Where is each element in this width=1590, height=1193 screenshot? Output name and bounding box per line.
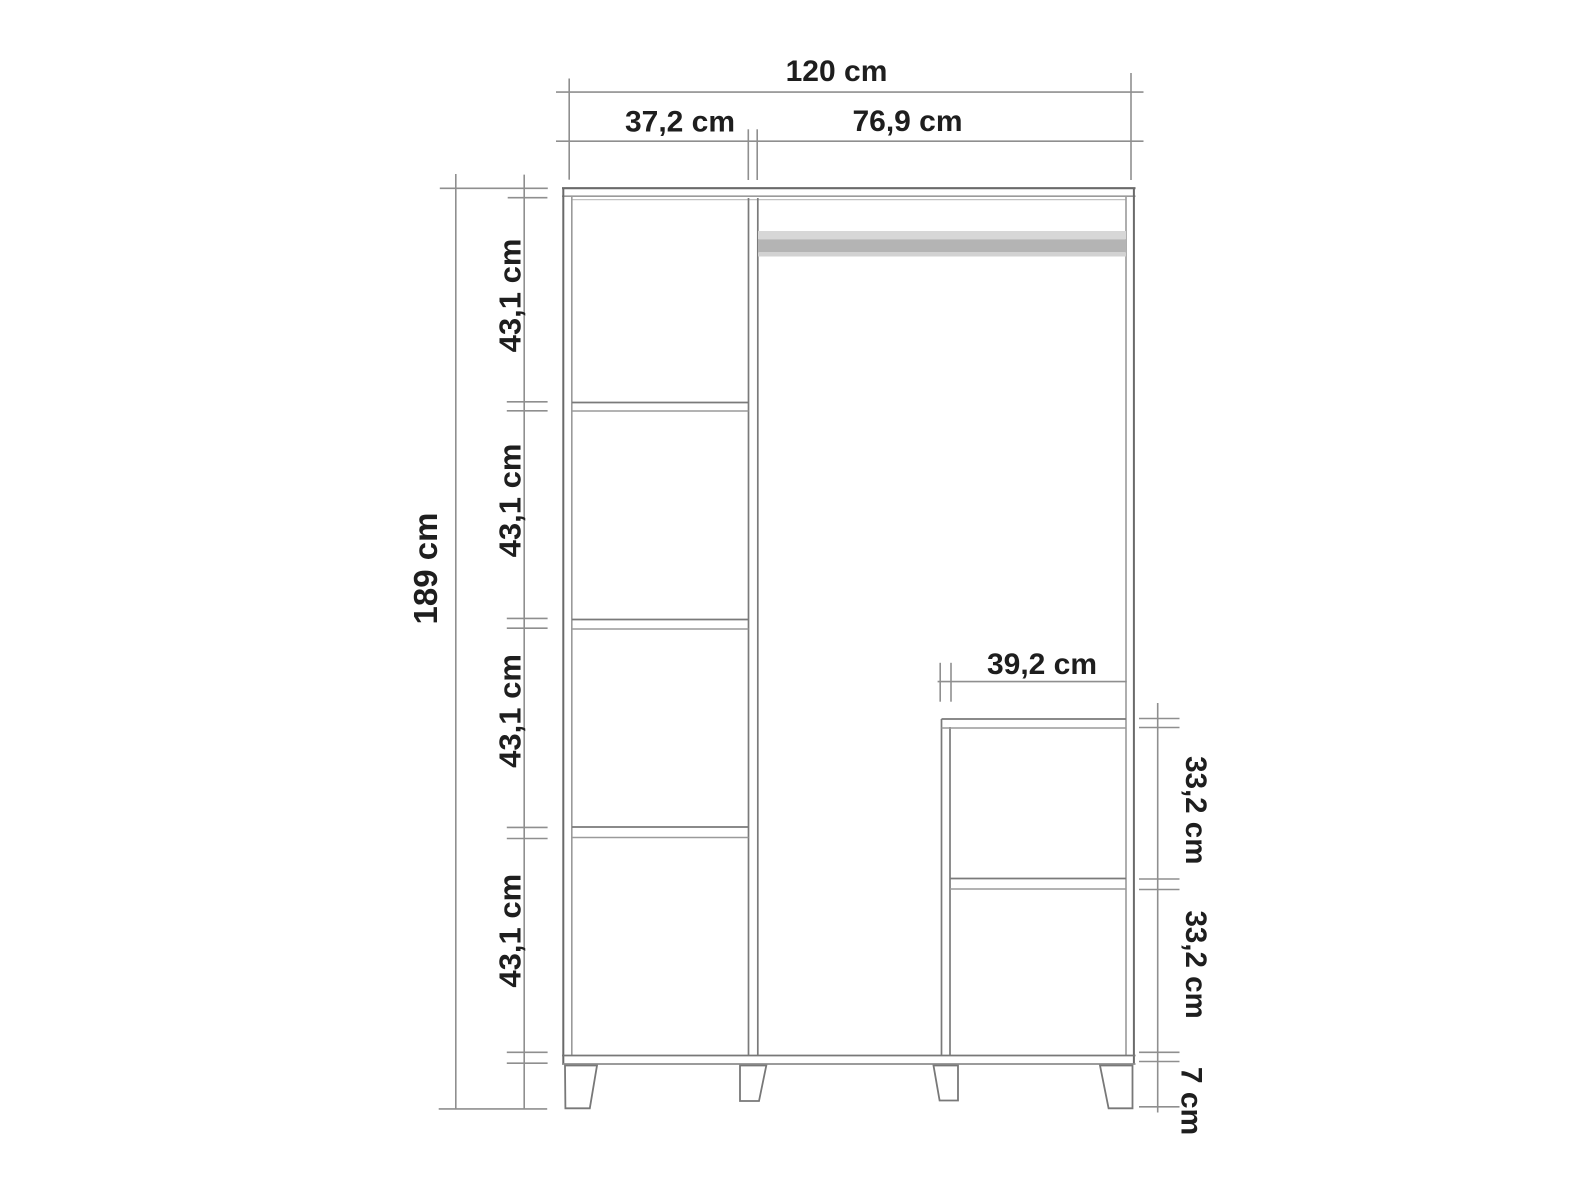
svg-text:76,9 cm: 76,9 cm xyxy=(852,105,962,138)
svg-text:43,1 cm: 43,1 cm xyxy=(493,239,528,353)
svg-text:39,2 cm: 39,2 cm xyxy=(987,648,1097,681)
svg-text:33,2 cm: 33,2 cm xyxy=(1179,910,1212,1018)
svg-text:7 cm: 7 cm xyxy=(1175,1067,1208,1135)
svg-text:43,1 cm: 43,1 cm xyxy=(493,874,528,988)
svg-text:120 cm: 120 cm xyxy=(786,55,888,88)
svg-text:43,1 cm: 43,1 cm xyxy=(493,654,528,768)
svg-text:33,2 cm: 33,2 cm xyxy=(1179,756,1212,864)
svg-text:37,2 cm: 37,2 cm xyxy=(625,106,735,139)
svg-text:189 cm: 189 cm xyxy=(407,513,444,625)
svg-text:43,1 cm: 43,1 cm xyxy=(493,444,528,558)
